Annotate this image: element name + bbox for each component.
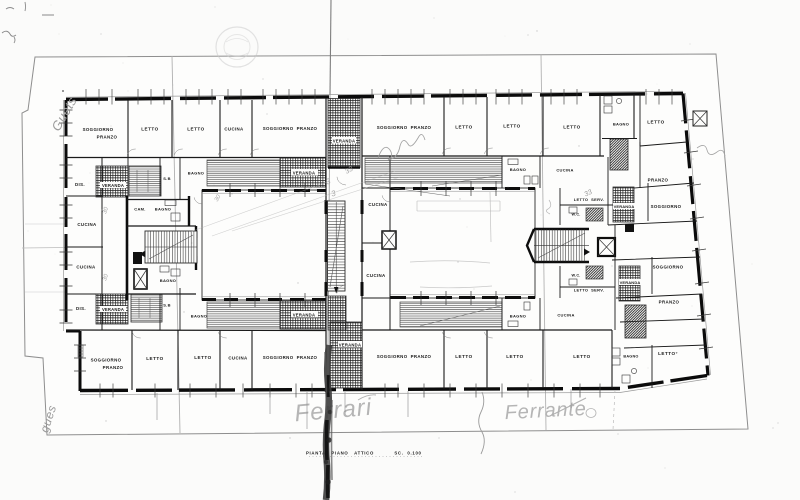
svg-text:BAGNO: BAGNO — [160, 278, 176, 283]
svg-text:CUCINA: CUCINA — [368, 202, 388, 207]
svg-text:BAGNO: BAGNO — [188, 171, 204, 176]
svg-text:Ferrante: Ferrante — [504, 398, 587, 424]
svg-text:LETTO: LETTO — [141, 127, 158, 132]
svg-text:W.C.: W.C. — [571, 274, 580, 278]
svg-text:LETTO SERV.: LETTO SERV. — [574, 197, 604, 202]
svg-text:CUCINA: CUCINA — [366, 273, 386, 278]
svg-text:LETTO SERV.: LETTO SERV. — [574, 288, 604, 293]
svg-text:SOGGIORNO: SOGGIORNO — [83, 127, 114, 132]
svg-text:PRANZO: PRANZO — [659, 300, 680, 305]
svg-text:BAGNO: BAGNO — [623, 355, 638, 359]
svg-text:BAGNO: BAGNO — [613, 122, 629, 127]
svg-text:PIANTA PIANO ATTICO: PIANTA PIANO ATTICO — [306, 451, 374, 456]
svg-text:CUCINA: CUCINA — [228, 356, 248, 361]
svg-text:DIS.: DIS. — [76, 306, 86, 311]
svg-text:CUCINA: CUCINA — [76, 265, 96, 270]
svg-text:LETTO: LETTO — [455, 354, 472, 359]
svg-text:VERANDA: VERANDA — [333, 138, 355, 143]
svg-text:CUCINA: CUCINA — [557, 313, 574, 318]
svg-text:LETTO: LETTO — [506, 354, 523, 359]
svg-text:SOGGIORNO PRANZO: SOGGIORNO PRANZO — [377, 354, 432, 359]
svg-text:BAGNO: BAGNO — [510, 314, 526, 319]
svg-text:VERANDA: VERANDA — [293, 170, 315, 175]
svg-text:PRANZO: PRANZO — [648, 178, 669, 183]
svg-text:LETTO: LETTO — [503, 124, 520, 129]
svg-text:SC. 0.100: SC. 0.100 — [394, 451, 421, 456]
svg-text:SOGGIORNO: SOGGIORNO — [651, 204, 682, 209]
svg-text:LETTO°: LETTO° — [658, 351, 678, 356]
svg-text:PRANZO: PRANZO — [97, 135, 118, 140]
svg-text:BAGNO: BAGNO — [155, 207, 171, 212]
svg-text:VERANDA: VERANDA — [102, 183, 124, 188]
svg-text:LETTO: LETTO — [455, 125, 472, 130]
svg-text:CUCINA: CUCINA — [556, 168, 573, 173]
svg-text:SOGGIORNO: SOGGIORNO — [91, 358, 122, 363]
svg-text:CUCINA: CUCINA — [77, 222, 97, 227]
svg-text:VERANDA: VERANDA — [620, 280, 641, 285]
svg-text:VERANDA: VERANDA — [339, 342, 361, 347]
svg-text:CAM.: CAM. — [134, 207, 145, 212]
svg-text:DIS.: DIS. — [75, 182, 85, 187]
svg-text:LETTO: LETTO — [647, 120, 664, 125]
svg-text:S.B: S.B — [163, 303, 171, 308]
svg-text:CUCINA: CUCINA — [224, 127, 244, 132]
svg-text:LETTO: LETTO — [573, 354, 590, 359]
svg-text:LETTO: LETTO — [187, 127, 204, 132]
svg-text:SOGGIORNO PRANZO: SOGGIORNO PRANZO — [263, 126, 318, 131]
svg-text:SOGGIORNO PRANZO: SOGGIORNO PRANZO — [377, 125, 432, 130]
svg-text:SOGGIORNO PRANZO: SOGGIORNO PRANZO — [263, 355, 318, 360]
svg-text:PRANZO: PRANZO — [103, 365, 124, 370]
svg-text:LETTO: LETTO — [563, 125, 580, 130]
svg-text:LETTO: LETTO — [194, 355, 211, 360]
svg-text:S.B: S.B — [163, 176, 171, 181]
svg-text:LETTO: LETTO — [146, 356, 163, 361]
svg-text:BAGNO: BAGNO — [191, 314, 207, 319]
svg-text:VERANDA: VERANDA — [293, 312, 315, 317]
svg-text:VERANDA: VERANDA — [614, 204, 635, 209]
svg-text:VERANDA: VERANDA — [102, 307, 124, 312]
svg-text:BAGNO: BAGNO — [510, 167, 526, 172]
svg-text:SOGGIORNO: SOGGIORNO — [653, 265, 684, 270]
